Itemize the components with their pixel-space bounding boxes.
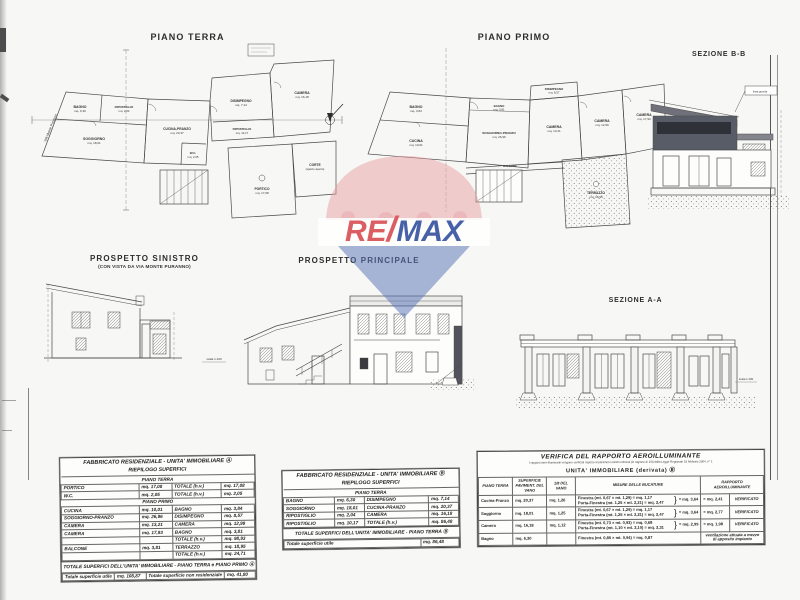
panel-prospetto-sinistro: PROSPETTO SINISTRO (CON VISTA DA VIA MON… xyxy=(42,254,247,392)
room-area: mq. 10,01 xyxy=(409,143,423,147)
scan-artifact xyxy=(2,430,12,431)
panel-piano-terra: PIANO TERRA xyxy=(30,32,345,237)
scale-note: scala 1:100 xyxy=(739,377,754,381)
scan-artifact-line xyxy=(28,388,29,480)
room-area: (spazio aperto) xyxy=(306,167,325,171)
north-arrow-icon xyxy=(326,104,344,125)
table-row: Totale superficie utilemq. 108,87Totale … xyxy=(62,571,255,581)
panel-sezione-aa: SEZIONE A-A xyxy=(503,296,768,410)
room-label: BALCONE xyxy=(503,164,517,168)
table-unit-a: FABBRICATO RESIDENZIALE - UNITA' IMMOBIL… xyxy=(59,455,257,583)
table-unit-b: FABBRICATO RESIDENZIALE - UNITA' IMMOBIL… xyxy=(281,468,460,550)
room-area: mq. 16,18 xyxy=(295,95,309,99)
room-area: mq. 18,01 xyxy=(87,141,101,145)
section-note-line2: dell'intervento edilizio xyxy=(680,129,709,133)
table-row: Bagno mq. 6,30 Finestra (mt. 0,85 × mt. … xyxy=(479,531,764,546)
room-area: mq. 20,37 xyxy=(170,131,184,135)
sezione-aa-title: SEZIONE A-A xyxy=(503,296,768,306)
room-area: mq. 3,81 xyxy=(494,108,505,112)
room-area: mq. 8,57 xyxy=(549,91,560,95)
panel-sezione-bb: SEZIONE B-B xyxy=(645,50,793,212)
room-area: mq. 12,99 xyxy=(595,123,609,127)
sezione-bb-title: SEZIONE B-B xyxy=(645,50,793,60)
section-note-line1: porzione di edificio non oggetto xyxy=(673,124,715,128)
eaves-tag: linea gronda xyxy=(753,90,768,94)
sezione-bb-drawing: linea gronda porzione di edificio non og… xyxy=(645,60,793,212)
scanned-floorplan-page: { "page": {"background": "#f7f7f5"}, "wa… xyxy=(0,0,800,600)
table-row: Totale superficie utilemq. 86,48 xyxy=(284,538,459,548)
scan-edge-shadow xyxy=(0,0,7,600)
piano-primo-drawing: BAGNO mq. 3,84 CUCINA mq. 10,01 SOGGIORN… xyxy=(358,42,670,237)
panel-prospetto-principale: PROSPETTO PRINCIPALE xyxy=(240,256,478,398)
piano-terra-drawing: VIA Monte Puranno BAGNO mq. 6,30 RIPOSTI… xyxy=(30,42,345,237)
prospetto-sinistro-title: PROSPETTO SINISTRO xyxy=(42,254,247,264)
room-area: mq. 26,96 xyxy=(492,135,506,139)
table-header-row: PIANO TERRA SUPERFICIE PAVIMENT. DEL VAN… xyxy=(478,476,763,495)
room-area: mq. 6,30 xyxy=(74,109,86,113)
room-area: mq. 17,08 xyxy=(255,191,269,195)
room-area: mq. 2,05 xyxy=(188,155,199,159)
piano-terra-title: PIANO TERRA xyxy=(30,32,345,42)
prospetto-principale-drawing xyxy=(240,266,478,398)
room-area: mq. 18,95 xyxy=(589,195,603,199)
panel-piano-primo: PIANO PRIMO xyxy=(358,32,670,237)
room-area: mq. 2,04 xyxy=(119,109,130,113)
street-label: VIA Monte Puranno xyxy=(43,114,58,143)
room-area: mq. 13,21 xyxy=(547,129,561,133)
room-area: mq. 3,84 xyxy=(410,109,422,113)
piano-primo-title: PIANO PRIMO xyxy=(358,32,670,42)
room-area: mq. 10,17 xyxy=(236,131,249,135)
prospetto-principale-title: PROSPETTO PRINCIPALE xyxy=(240,256,478,266)
scan-artifact xyxy=(2,400,16,401)
sezione-aa-drawing: scala 1:100 xyxy=(503,306,768,410)
table-verifica-aeroilluminante: VERIFICA DEL RAPPORTO AEROILLUMINANTE I … xyxy=(477,449,766,547)
room-area: mq. 7,14 xyxy=(235,103,247,107)
scale-note: scala 1:100 xyxy=(206,357,222,361)
scan-artifact xyxy=(0,28,6,52)
prospetto-sinistro-drawing: scala 1:100 xyxy=(42,270,247,392)
